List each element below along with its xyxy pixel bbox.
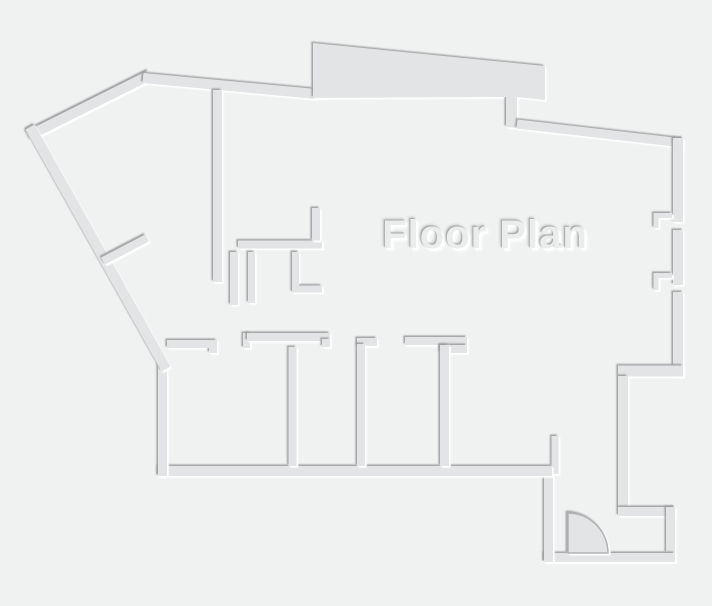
diagonal-door-stub (103, 238, 147, 261)
floor-plan-page: Floor Plan (0, 0, 712, 606)
closet-wall-3 (296, 252, 323, 289)
floor-plan-drawing (0, 0, 712, 606)
window-notch-upper (656, 216, 672, 229)
entry-door-swing (568, 513, 608, 553)
balcony-bump (313, 43, 545, 128)
nw-diagonal-wall (28, 75, 150, 136)
window-notch-lower (656, 276, 672, 291)
walls-group (28, 43, 683, 562)
room1-top-wall (167, 344, 213, 353)
north-wall-west (143, 78, 316, 94)
north-wall-east (517, 124, 683, 143)
floor-plan-title: Floor Plan (382, 213, 588, 258)
sw-diagonal-wall (30, 127, 166, 369)
